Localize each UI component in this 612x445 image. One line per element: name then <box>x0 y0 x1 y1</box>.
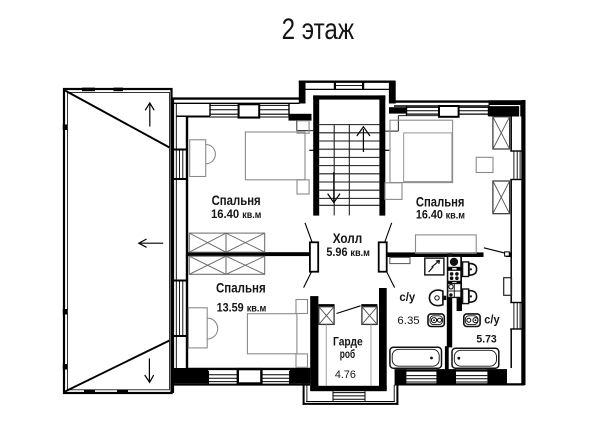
svg-text:с/у: с/у <box>484 313 499 327</box>
svg-text:4.76: 4.76 <box>335 369 356 381</box>
svg-text:роб: роб <box>340 347 355 361</box>
svg-text:5.96: 5.96 <box>326 245 347 259</box>
svg-text:с/у: с/у <box>399 290 415 304</box>
svg-text:5.73: 5.73 <box>476 334 496 346</box>
svg-text:16.40: 16.40 <box>211 207 240 221</box>
svg-text:2 этаж: 2 этаж <box>282 13 354 46</box>
svg-text:кв.м: кв.м <box>446 209 466 221</box>
svg-text:кв.м: кв.м <box>350 247 370 259</box>
svg-text:13.59: 13.59 <box>217 301 244 315</box>
svg-text:кв.м: кв.м <box>242 209 261 221</box>
svg-text:Спальня: Спальня <box>216 281 266 296</box>
svg-text:кв.м: кв.м <box>247 303 267 315</box>
svg-text:Спальня: Спальня <box>212 193 261 208</box>
svg-text:6.35: 6.35 <box>397 315 419 327</box>
svg-text:16.40: 16.40 <box>416 207 443 221</box>
